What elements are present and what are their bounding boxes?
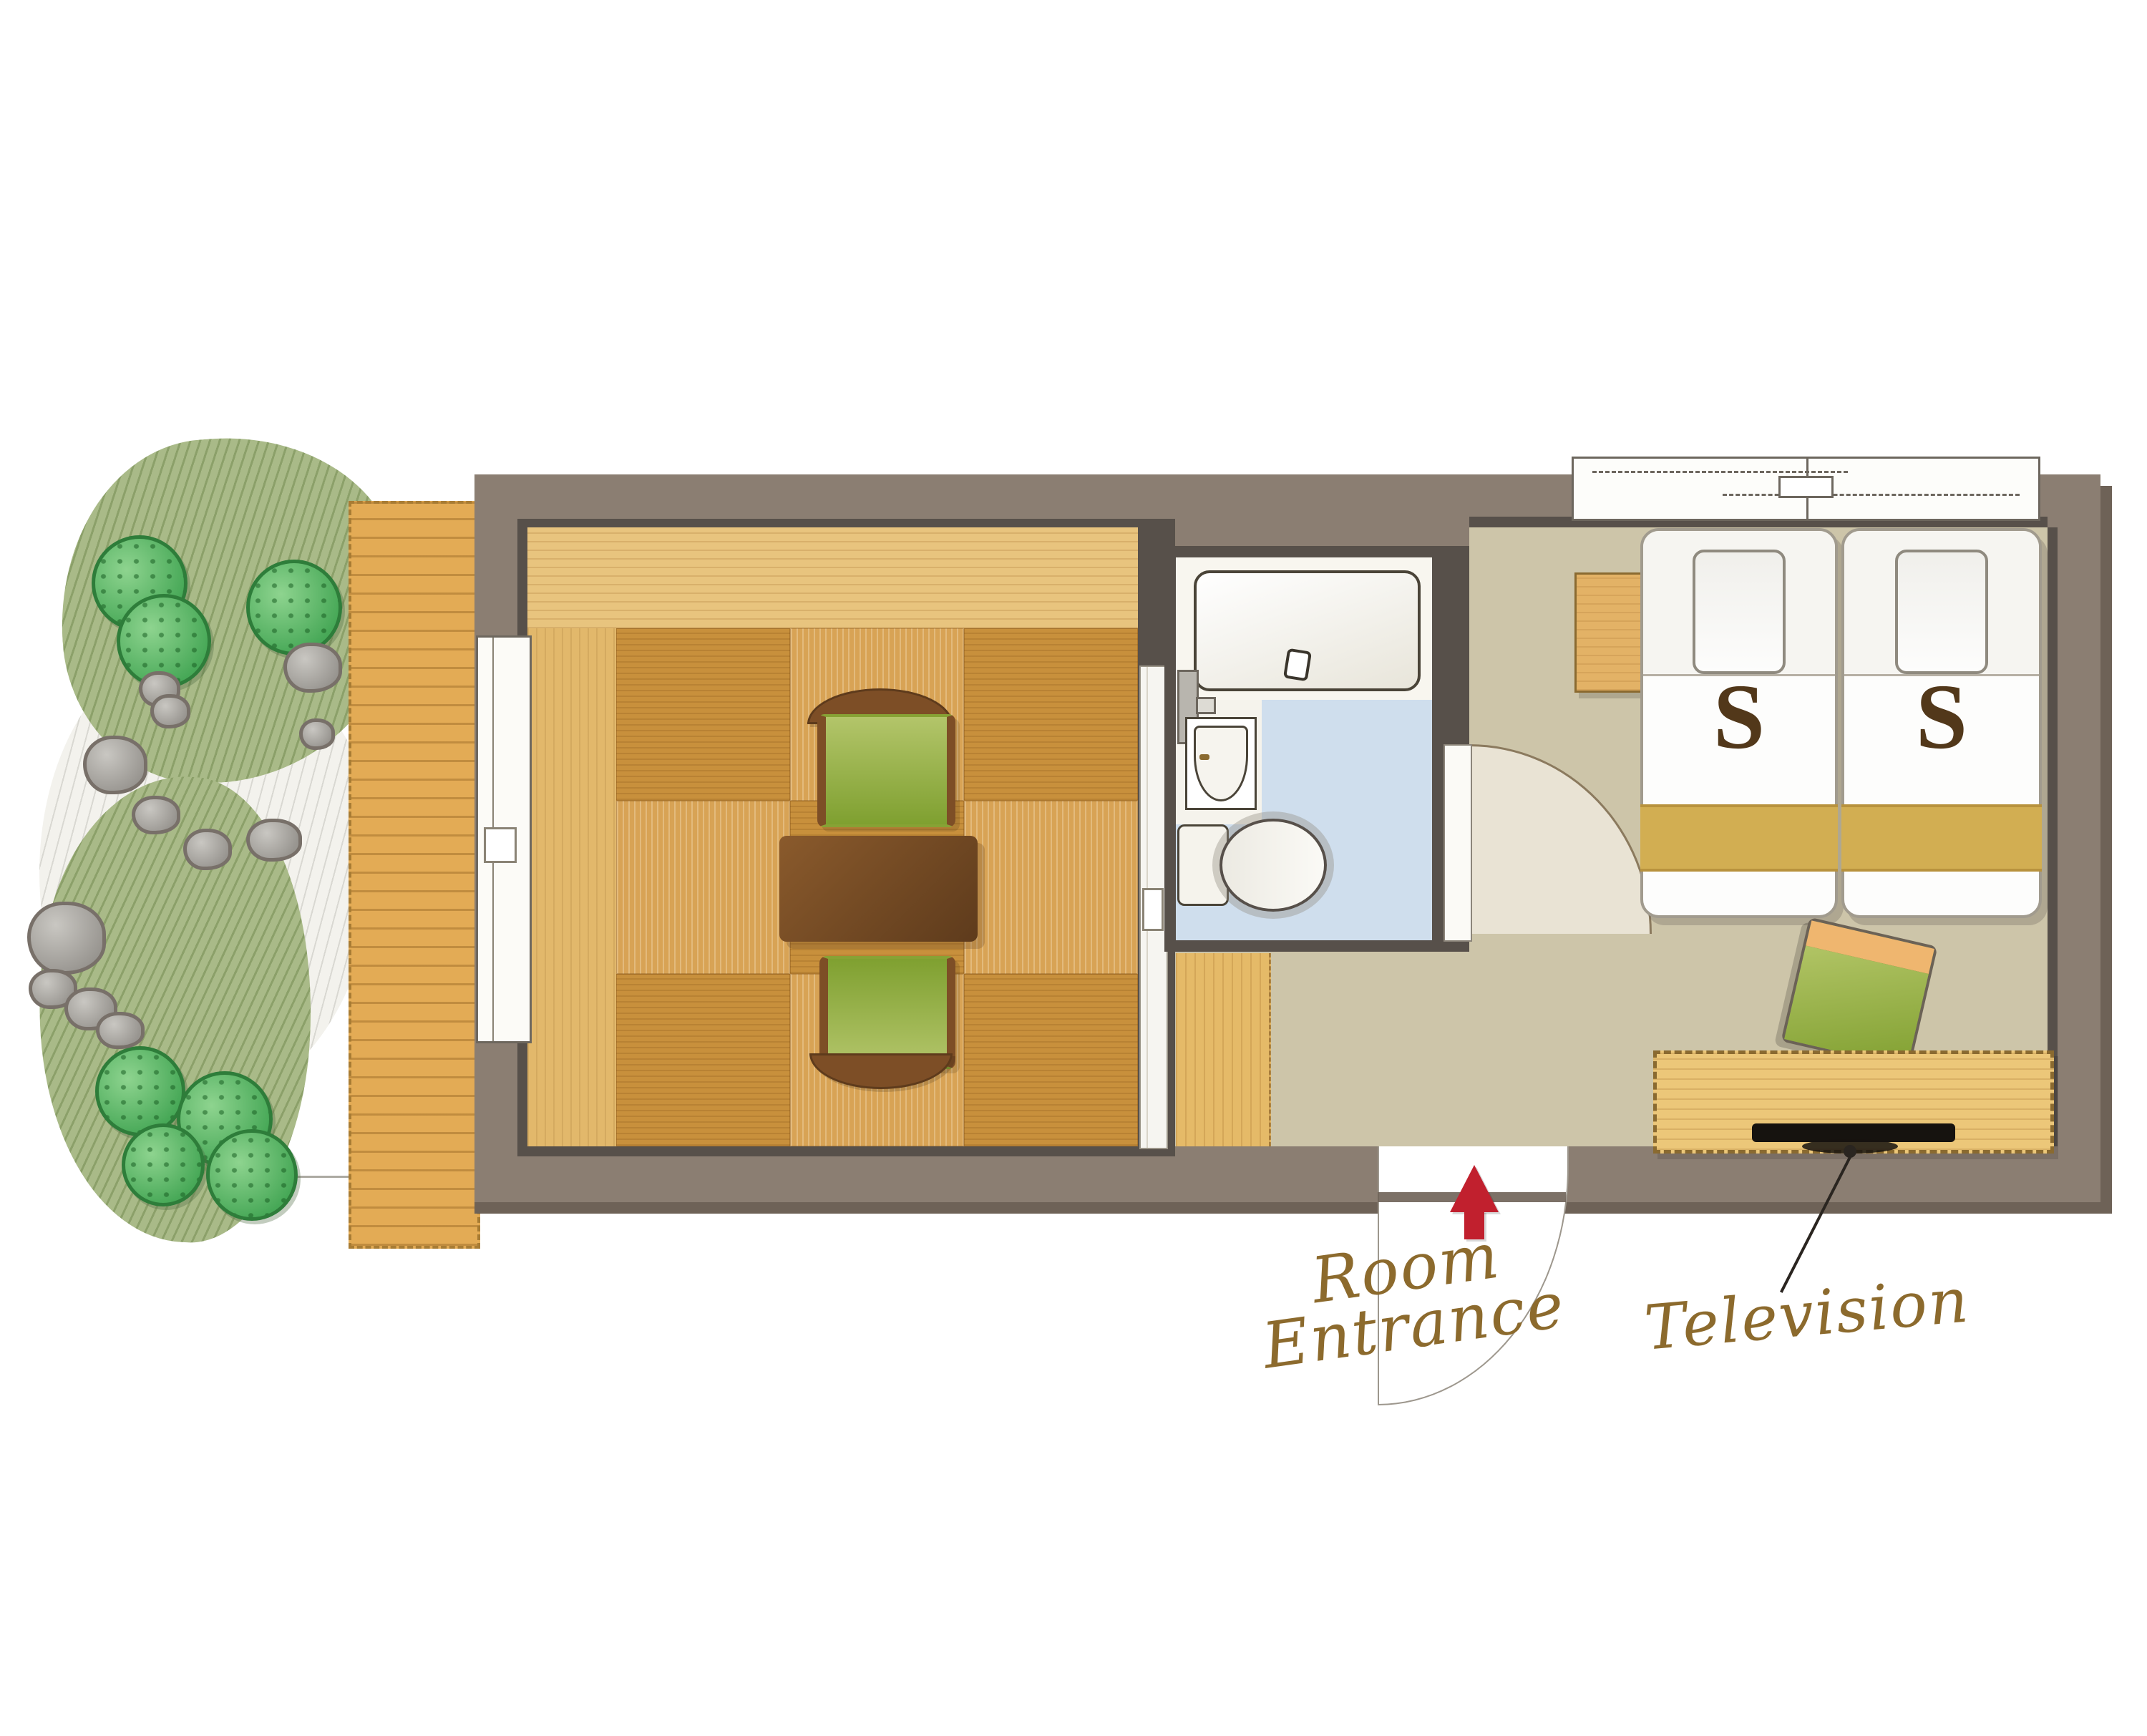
shoji-window-left-wall xyxy=(476,635,532,1043)
garden-stone xyxy=(299,718,335,750)
garden-stone xyxy=(132,796,180,834)
garden-stone xyxy=(283,643,342,693)
television-leader-dot xyxy=(1844,1145,1856,1158)
tatami-mat xyxy=(964,628,1138,801)
bush-icon xyxy=(246,560,342,655)
tatami-side-wood-strip xyxy=(527,628,618,1146)
floor-chair-top xyxy=(807,688,948,824)
bed-size-label: S xyxy=(1844,663,2039,771)
window-sketch-line xyxy=(1723,494,2020,496)
toilet-bowl xyxy=(1219,819,1327,912)
pillow xyxy=(1693,550,1786,674)
garden-stone xyxy=(96,1012,145,1049)
floor-chair-bottom xyxy=(809,952,948,1089)
window-sketch-line xyxy=(1592,471,1848,473)
tatami-mat xyxy=(964,801,1138,973)
garden-stone xyxy=(246,819,302,862)
entrance-arrow-icon xyxy=(1450,1165,1499,1212)
nightstand xyxy=(1574,572,1649,693)
bathtub-drain xyxy=(1283,648,1312,682)
fusuma-sliding-door xyxy=(1139,665,1168,1149)
low-table xyxy=(779,836,978,942)
sink-faucet-icon xyxy=(1199,754,1209,760)
garden-stone xyxy=(183,829,232,870)
single-bed-1: S xyxy=(1640,528,1838,918)
garden-stone xyxy=(83,736,147,794)
tatami-mat xyxy=(964,974,1138,1146)
tatami-mat xyxy=(616,628,790,801)
television-label: Television xyxy=(1633,1272,1980,1358)
bed-gold-band xyxy=(1841,804,2042,872)
bush-icon xyxy=(95,1046,185,1136)
chair-backrest xyxy=(809,1053,953,1089)
single-bed-2: S xyxy=(1841,528,2042,918)
tatami-mat xyxy=(616,974,790,1146)
fusuma-handle xyxy=(1142,888,1164,931)
tatami-mat xyxy=(616,801,790,973)
shoji-latch xyxy=(484,827,517,863)
chair-seat xyxy=(817,714,955,827)
genkan-wood-step xyxy=(1176,953,1271,1146)
pillow xyxy=(1895,550,1988,674)
floor-plan-canvas: S S Room Entrance Television xyxy=(0,0,2147,1736)
garden-stone xyxy=(150,694,190,728)
engawa-wood-deck xyxy=(349,501,480,1249)
chair-seat xyxy=(819,956,955,1069)
bed-gold-band xyxy=(1640,804,1838,872)
bed-size-label: S xyxy=(1643,663,1835,771)
garden-stone xyxy=(27,902,106,975)
tokonoma-alcove xyxy=(527,527,1138,630)
bush-icon xyxy=(122,1123,205,1206)
bedroom-window xyxy=(1572,457,2040,521)
bathroom-door-leaf xyxy=(1443,744,1472,942)
bush-icon xyxy=(206,1129,298,1221)
window-latch xyxy=(1778,476,1834,498)
shower-bracket xyxy=(1196,697,1216,714)
room-entrance-label: Room Entrance xyxy=(1203,1212,1616,1383)
